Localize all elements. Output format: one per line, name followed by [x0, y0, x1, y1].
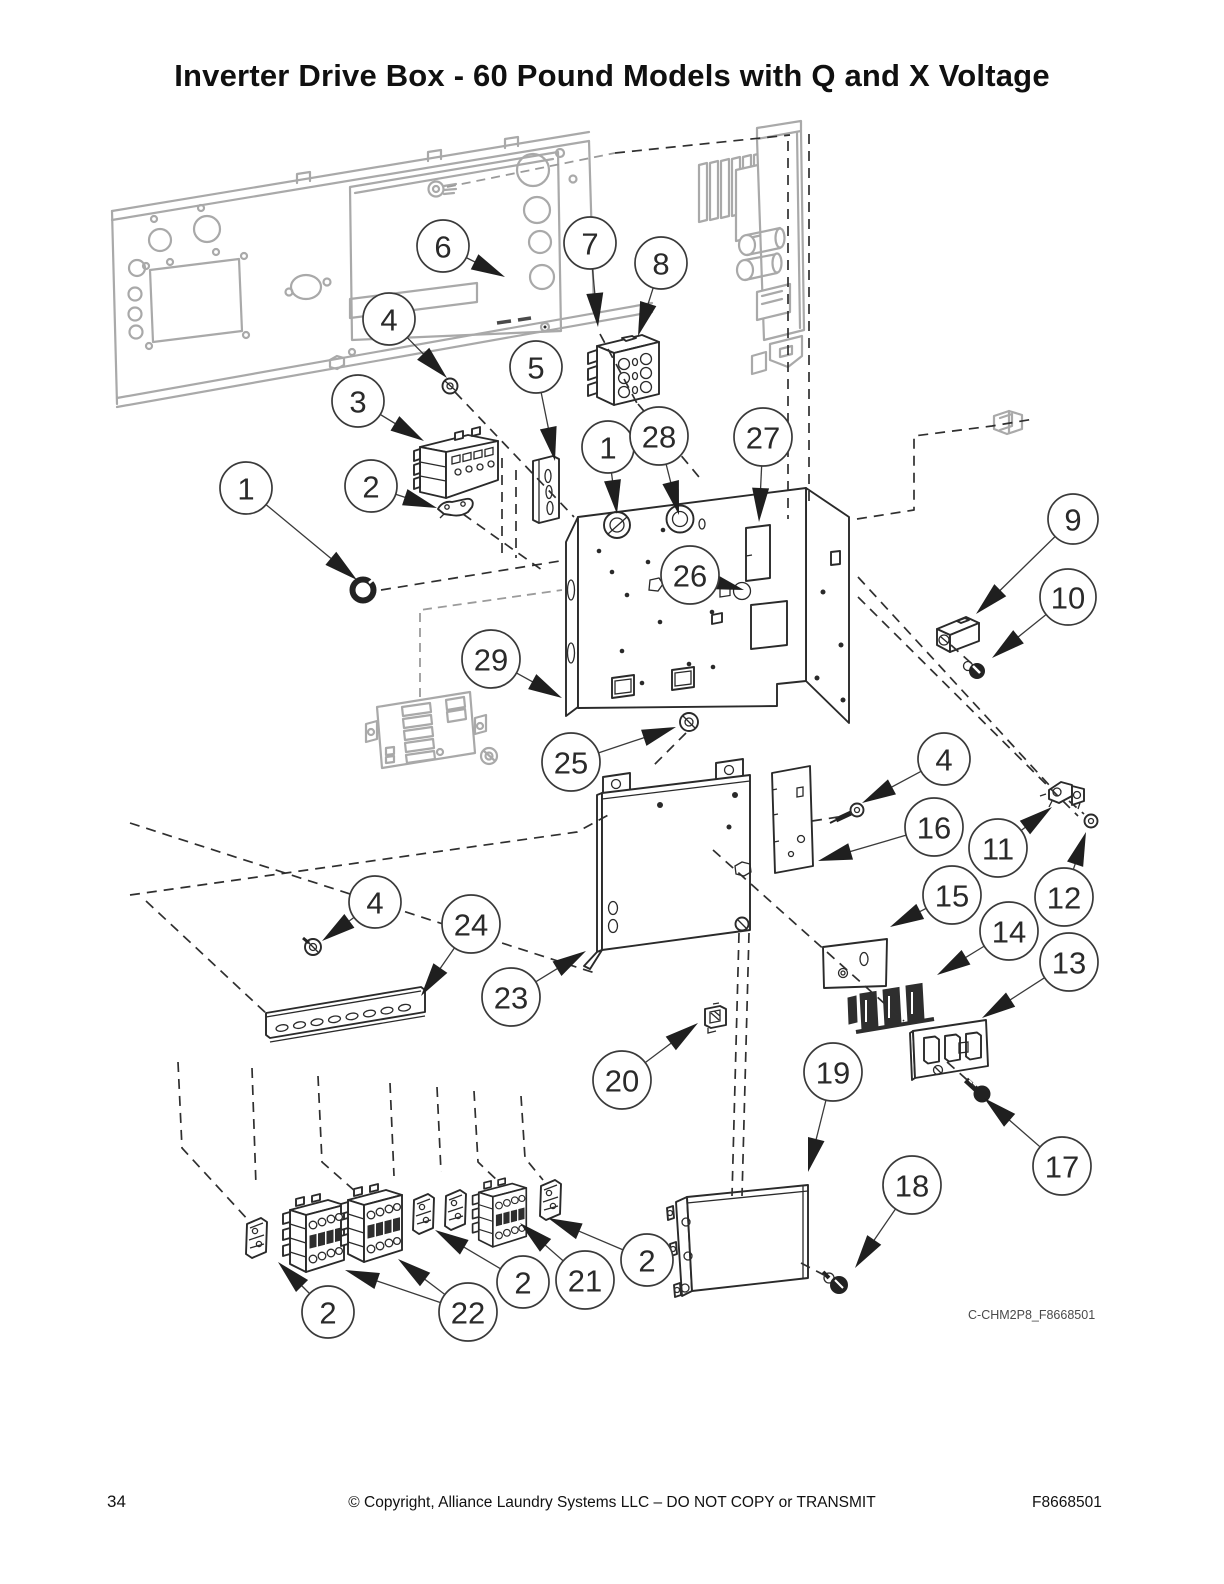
screw-17 [966, 1080, 991, 1103]
svg-text:28: 28 [642, 420, 676, 455]
svg-text:2: 2 [638, 1244, 655, 1279]
document-number: F8668501 [1032, 1494, 1102, 1512]
svg-text:24: 24 [454, 908, 488, 943]
screw-25 [680, 713, 698, 731]
svg-text:9: 9 [1064, 503, 1081, 538]
callout-4: 4 [322, 876, 401, 941]
svg-text:4: 4 [380, 303, 397, 338]
callout-23: 23 [482, 951, 586, 1026]
svg-text:20: 20 [605, 1064, 639, 1099]
callout-20: 20 [593, 1023, 698, 1109]
callout-15: 15 [890, 866, 981, 927]
din-rail-5 [533, 456, 559, 523]
hinge-11 [1040, 782, 1084, 809]
svg-text:22: 22 [451, 1296, 485, 1331]
callout-3: 3 [332, 375, 424, 441]
svg-text:25: 25 [554, 746, 588, 781]
svg-text:13: 13 [1052, 946, 1086, 981]
svg-text:18: 18 [895, 1169, 929, 1204]
bracket-9 [937, 617, 979, 652]
callout-11: 11 [969, 807, 1052, 877]
screw-4-top [443, 379, 458, 394]
mounting-plate-23 [584, 759, 751, 969]
svg-text:26: 26 [673, 559, 707, 594]
callout-16: 16 [818, 798, 963, 861]
svg-text:19: 19 [816, 1056, 850, 1091]
svg-text:21: 21 [568, 1264, 602, 1299]
fuse-block-13 [910, 1020, 988, 1080]
svg-text:10: 10 [1051, 581, 1085, 616]
callout-29: 29 [462, 630, 562, 698]
clip-20 [705, 1003, 726, 1033]
svg-text:27: 27 [746, 421, 780, 456]
svg-text:8: 8 [652, 247, 669, 282]
plate-15 [823, 939, 887, 988]
svg-text:16: 16 [917, 811, 951, 846]
svg-text:2: 2 [514, 1266, 531, 1301]
callout-5: 5 [510, 341, 562, 461]
callout-6: 6 [417, 220, 505, 277]
callout-19: 19 [804, 1043, 862, 1172]
screw-10 [964, 662, 986, 680]
svg-text:11: 11 [982, 832, 1014, 867]
callout-17: 17 [984, 1098, 1091, 1195]
mounting-clip-2 [438, 499, 473, 518]
grommet-1 [353, 579, 375, 601]
screw-4-left [303, 938, 321, 955]
callout-22: 22 [345, 1259, 497, 1341]
callout-2: 2 [278, 1262, 354, 1338]
terminal-block-8 [588, 335, 659, 405]
svg-text:17: 17 [1045, 1150, 1079, 1185]
din-rail-24 [266, 987, 425, 1042]
callout-1: 1 [582, 421, 634, 514]
svg-text:2: 2 [362, 470, 379, 505]
pcb-plate-16 [772, 766, 813, 873]
svg-text:1: 1 [599, 431, 616, 466]
svg-text:14: 14 [992, 915, 1026, 950]
svg-text:3: 3 [349, 385, 366, 420]
diagram-reference-code: C-CHM2P8_F8668501 [968, 1308, 1095, 1322]
svg-text:7: 7 [581, 227, 598, 262]
rear-panel [112, 132, 652, 407]
svg-text:2: 2 [319, 1296, 336, 1331]
svg-text:6: 6 [434, 230, 451, 265]
svg-text:15: 15 [935, 879, 969, 914]
callout-1: 1 [220, 462, 357, 580]
callout-28: 28 [630, 407, 688, 515]
screw-4-right [830, 804, 864, 824]
contactor-3 [414, 427, 498, 498]
screw-12 [1085, 815, 1098, 828]
callout-8: 8 [635, 237, 687, 336]
svg-text:5: 5 [527, 351, 544, 386]
callout-12: 12 [1035, 832, 1093, 926]
control-board-gray [366, 692, 497, 768]
fuse-holder-14 [848, 984, 934, 1033]
drive-box-29 [566, 488, 849, 723]
screw-18 [823, 1272, 848, 1294]
manual-page: Inverter Drive Box - 60 Pound Models wit… [0, 0, 1224, 1584]
cover-box-19 [667, 1185, 808, 1297]
exploded-parts-diagram: 1234567812827269102925416111215141342423… [0, 0, 1224, 1584]
svg-text:4: 4 [366, 886, 383, 921]
callout-4: 4 [862, 733, 970, 803]
svg-text:29: 29 [474, 643, 508, 678]
svg-text:23: 23 [494, 981, 528, 1016]
callout-18: 18 [855, 1156, 941, 1268]
svg-text:1: 1 [237, 472, 254, 507]
svg-text:12: 12 [1047, 881, 1081, 916]
svg-text:4: 4 [935, 743, 952, 778]
